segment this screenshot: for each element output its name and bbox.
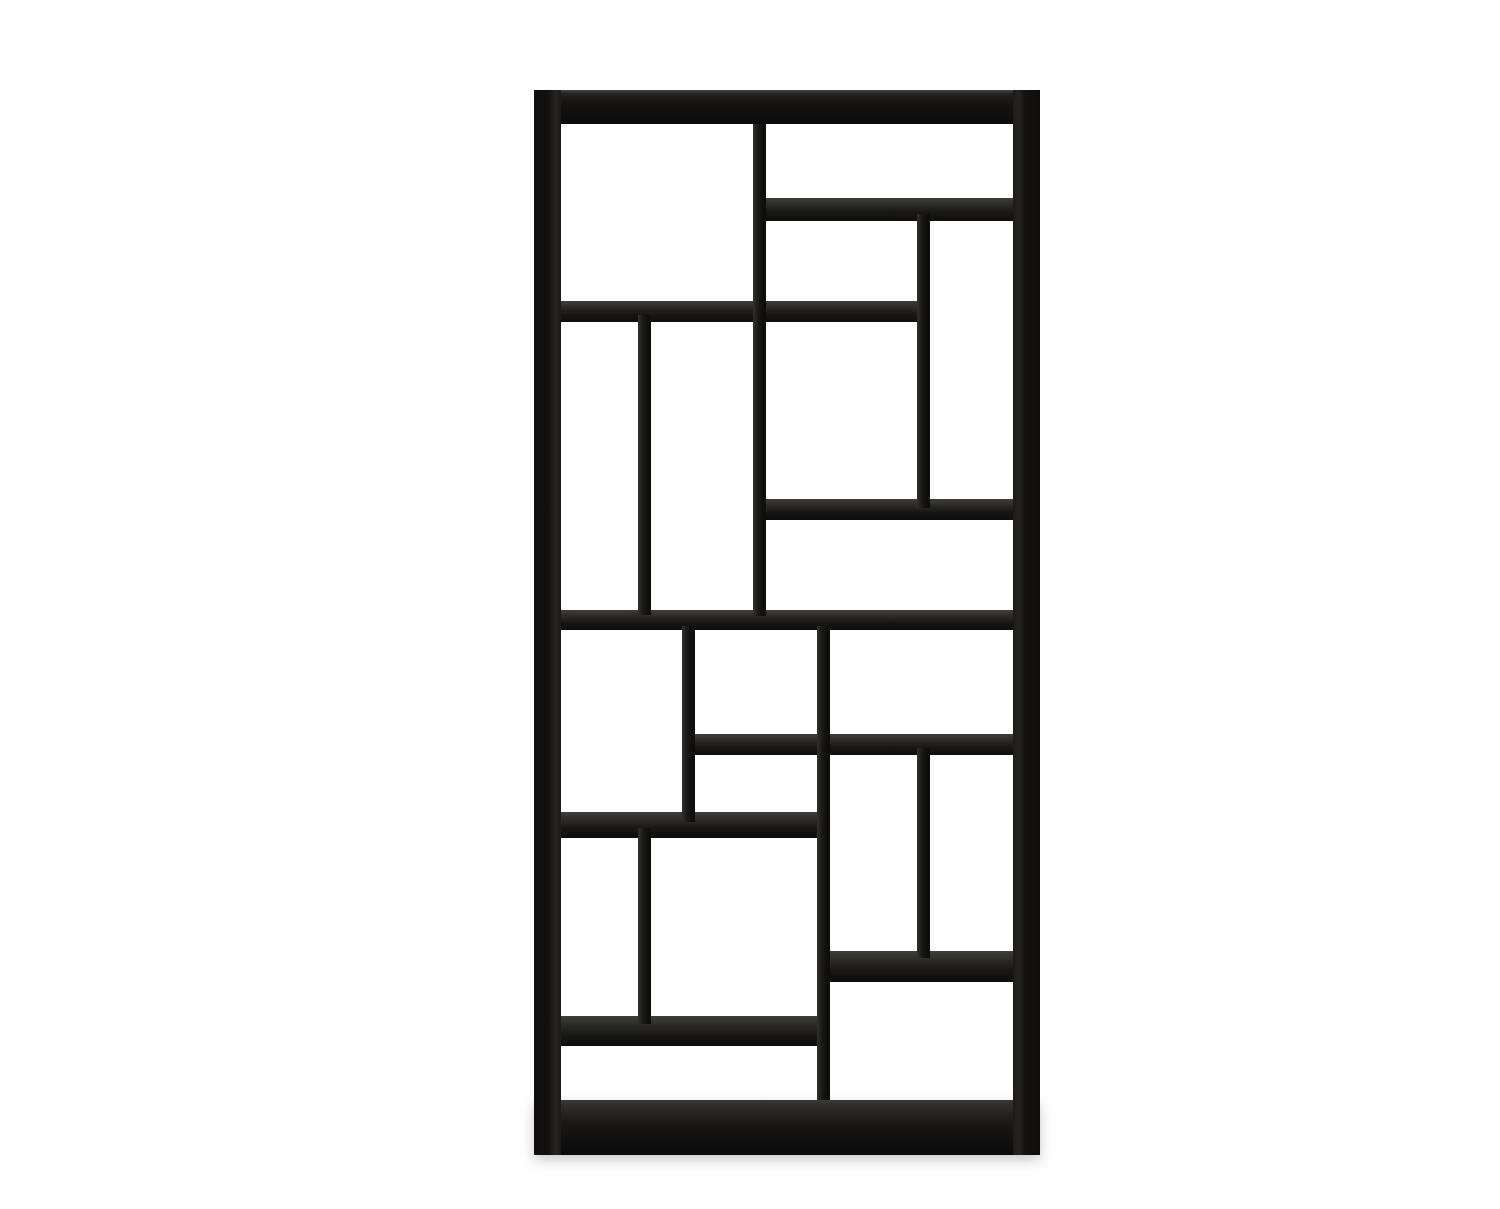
- shelf-top-right: [760, 198, 1015, 221]
- divider-bottom-left: [638, 828, 651, 1024]
- divider-mid-long: [817, 626, 830, 1108]
- divider-lower-right: [917, 748, 930, 958]
- shelf-lower-mid-right: [688, 734, 1015, 755]
- frame-bottom: [534, 1100, 1040, 1155]
- divider-upper-left: [638, 315, 651, 615]
- frame-right: [1013, 90, 1040, 1155]
- shelf-mid-right: [758, 499, 1015, 520]
- divider-mid-left: [682, 626, 695, 822]
- frame-top: [534, 90, 1040, 124]
- shelf-bottom-left: [556, 1016, 824, 1046]
- frame-left: [534, 90, 561, 1155]
- shelf-upper-left: [556, 301, 930, 322]
- divider-top-center: [753, 124, 766, 616]
- shelf-middle-full: [556, 610, 1015, 630]
- divider-upper-right: [917, 214, 930, 508]
- bookshelf: [0, 0, 1500, 1209]
- product-photo-canvas: [0, 0, 1500, 1209]
